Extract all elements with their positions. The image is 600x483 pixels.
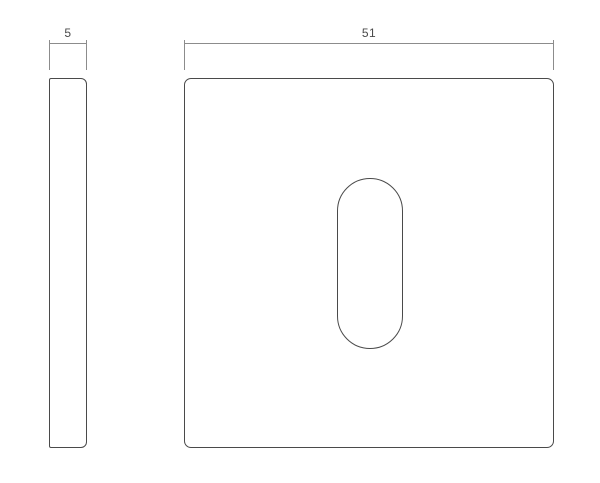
dimension-line-width: [184, 43, 554, 44]
keyhole-cutout: [337, 178, 403, 349]
extension-line-thickness-left: [49, 40, 50, 70]
dimension-line-thickness: [49, 43, 87, 44]
technical-drawing-canvas: 5 51: [0, 0, 600, 483]
extension-line-width-left: [184, 40, 185, 70]
extension-line-thickness-right: [86, 40, 87, 70]
extension-line-width-right: [553, 40, 554, 70]
dimension-label-width: 51: [184, 26, 554, 40]
side-view-plate: [49, 78, 87, 448]
dimension-label-thickness: 5: [49, 26, 87, 40]
